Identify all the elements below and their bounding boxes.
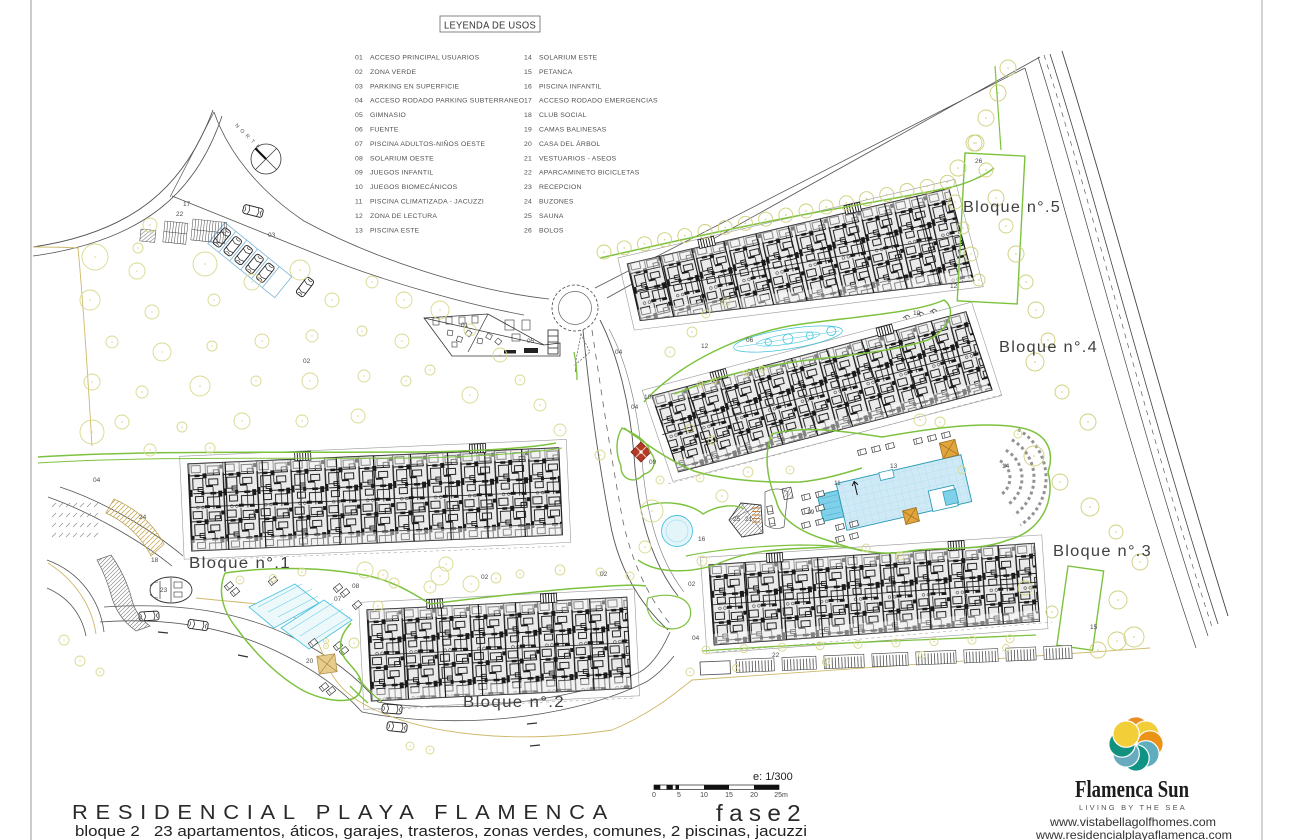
svg-text:08: 08 [355,155,363,162]
svg-text:24: 24 [139,514,147,521]
svg-text:05: 05 [355,112,363,119]
svg-text:Bloque n°.3: Bloque n°.3 [1053,543,1152,560]
svg-text:15: 15 [725,792,733,799]
svg-text:10: 10 [355,184,363,191]
svg-text:23: 23 [524,184,532,191]
svg-text:BUZONES: BUZONES [539,199,574,206]
svg-text:09: 09 [355,170,363,177]
svg-text:12: 12 [701,343,709,350]
svg-text:e: 1/300: e: 1/300 [753,771,793,783]
svg-text:26: 26 [975,158,983,165]
svg-text:11: 11 [355,199,362,206]
svg-text:14: 14 [524,55,532,62]
svg-text:04: 04 [355,98,363,105]
svg-text:25: 25 [733,516,741,523]
svg-text:02: 02 [688,581,696,588]
svg-text:21: 21 [524,155,532,162]
svg-text:CASA DEL ÁRBOL: CASA DEL ÁRBOL [539,139,600,148]
svg-text:22: 22 [772,652,780,659]
svg-text:ACCESO RODADO PARKING SUBTERRA: ACCESO RODADO PARKING SUBTERRANEO [370,98,524,105]
svg-text:CAMAS BALINESAS: CAMAS BALINESAS [539,127,607,134]
svg-text:01: 01 [355,55,363,62]
svg-text:PISCINA INFANTIL: PISCINA INFANTIL [539,83,602,90]
svg-text:LIVING BY THE SEA: LIVING BY THE SEA [1079,803,1187,812]
svg-text:JUEGOS BIOMECÁNICOS: JUEGOS BIOMECÁNICOS [370,182,458,191]
svg-text:Bloque n°.4: Bloque n°.4 [999,339,1098,356]
svg-text:www.residencialplayaflamenca.c: www.residencialplayaflamenca.com [1035,828,1232,840]
svg-text:13: 13 [355,227,363,234]
svg-text:20: 20 [306,658,314,665]
svg-text:10: 10 [700,792,708,799]
svg-text:PARKING EN SUPERFICIE: PARKING EN SUPERFICIE [370,83,460,90]
svg-text:13: 13 [890,463,898,470]
svg-text:25: 25 [524,213,532,220]
svg-text:PISCINA ADULTOS-NIÑOS OESTE: PISCINA ADULTOS-NIÑOS OESTE [370,139,485,148]
svg-text:18: 18 [151,557,159,564]
svg-text:11: 11 [834,480,841,487]
svg-text:15: 15 [524,69,532,76]
svg-text:Bloque n°.5: Bloque n°.5 [963,199,1061,216]
svg-text:PISCINA ESTE: PISCINA ESTE [370,227,420,234]
svg-text:15: 15 [1090,624,1098,631]
svg-text:SOLARIUM OESTE: SOLARIUM OESTE [370,155,434,162]
svg-text:Bloque n°.1: Bloque n°.1 [189,555,291,572]
svg-text:CLUB SOCIAL: CLUB SOCIAL [539,112,587,119]
svg-text:02: 02 [303,358,311,365]
svg-text:10: 10 [913,310,921,317]
svg-text:26: 26 [524,227,532,234]
svg-text:ZONA VERDE: ZONA VERDE [370,69,417,76]
svg-text:bloque 2 23 apartamentos, át: bloque 2 23 apartamentos, áticos, garaje… [75,824,807,840]
svg-text:19: 19 [524,127,532,134]
svg-text:07: 07 [355,141,363,148]
svg-text:20: 20 [750,792,758,799]
svg-text:24: 24 [524,199,532,206]
svg-text:www.vistabellagolfhomes.com: www.vistabellagolfhomes.com [1049,815,1216,829]
svg-text:22: 22 [524,170,532,177]
svg-text:10: 10 [644,394,652,401]
svg-text:PETANCA: PETANCA [539,69,573,76]
svg-text:PISCINA CLIMATIZADA - JACUZZI: PISCINA CLIMATIZADA - JACUZZI [370,199,484,206]
svg-text:07: 07 [334,596,342,603]
svg-text:04: 04 [631,404,639,411]
svg-text:12: 12 [355,213,363,220]
svg-text:02: 02 [355,69,363,76]
svg-text:GIMNASIO: GIMNASIO [370,112,406,119]
svg-text:14: 14 [1002,463,1010,470]
svg-text:04: 04 [692,635,700,642]
svg-text:25m: 25m [774,792,788,799]
svg-text:ACCESO PRINCIPAL USUARIOS: ACCESO PRINCIPAL USUARIOS [370,55,480,62]
svg-text:06: 06 [355,127,363,134]
svg-text:SAUNA: SAUNA [539,213,564,220]
svg-text:5: 5 [677,792,681,799]
svg-text:01: 01 [461,322,469,329]
svg-text:02: 02 [481,574,489,581]
svg-text:0: 0 [652,792,656,799]
svg-text:08: 08 [352,583,360,590]
svg-text:04: 04 [615,349,623,356]
svg-text:17: 17 [524,98,532,105]
svg-text:23: 23 [160,587,168,594]
svg-text:17: 17 [183,201,191,208]
svg-text:FUENTE: FUENTE [370,127,399,134]
svg-text:22: 22 [176,211,184,218]
svg-text:ZONA DE LECTURA: ZONA DE LECTURA [370,213,437,220]
svg-text:04: 04 [93,477,101,484]
svg-text:09: 09 [649,459,657,466]
svg-text:02: 02 [600,571,608,578]
svg-text:SOLARIUM ESTE: SOLARIUM ESTE [539,55,598,62]
svg-text:03: 03 [355,83,363,90]
svg-text:03: 03 [268,232,276,239]
svg-text:RECEPCION: RECEPCION [539,184,582,191]
svg-text:LEYENDA DE USOS: LEYENDA DE USOS [444,20,536,32]
svg-text:RESIDENCIAL PLAYA FLAMENCA: RESIDENCIAL PLAYA FLAMENCA [72,802,615,824]
svg-text:VESTUARIOS - ASEOS: VESTUARIOS - ASEOS [539,155,617,162]
svg-text:JUEGOS INFANTIL: JUEGOS INFANTIL [370,170,433,177]
svg-text:12: 12 [950,283,958,290]
svg-text:fase2: fase2 [716,800,807,826]
svg-text:Flamenca Sun: Flamenca Sun [1075,777,1189,803]
svg-text:APARCAMINETO BICICLETAS: APARCAMINETO BICICLETAS [539,170,640,177]
svg-text:BOLOS: BOLOS [539,227,564,234]
svg-text:Bloque n°.2: Bloque n°.2 [463,694,565,711]
svg-text:20: 20 [524,141,532,148]
svg-text:ACCESO RODADO EMERGENCIAS: ACCESO RODADO EMERGENCIAS [539,98,658,105]
svg-text:16: 16 [698,536,706,543]
svg-text:16: 16 [524,83,532,90]
svg-text:21: 21 [745,516,753,523]
svg-text:18: 18 [524,112,532,119]
svg-text:05: 05 [527,338,535,345]
svg-text:06: 06 [746,337,754,344]
svg-text:19: 19 [807,509,815,516]
